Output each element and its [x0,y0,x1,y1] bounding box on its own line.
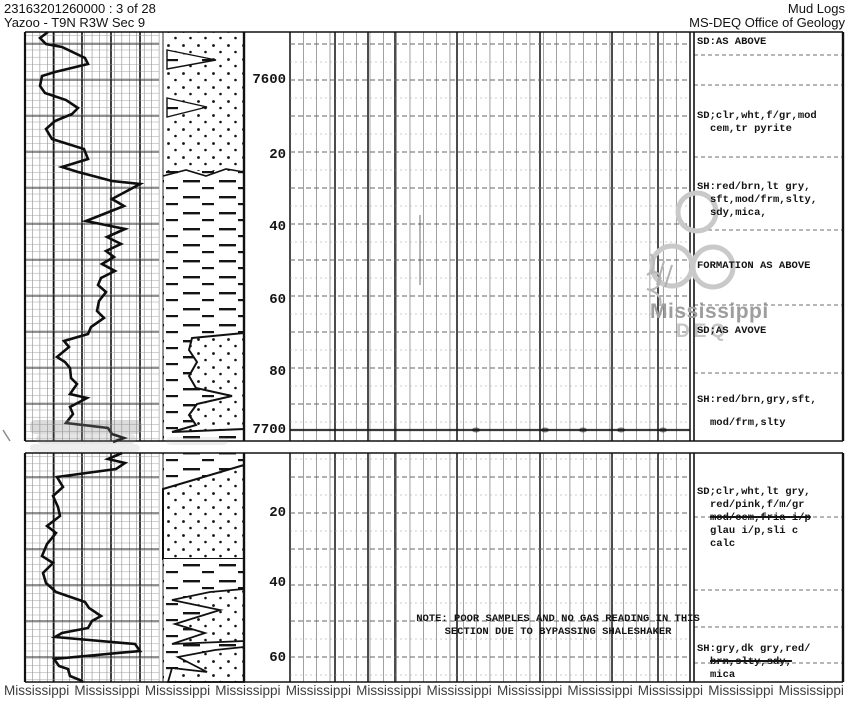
log-chart-svg [0,0,848,705]
description-line: cem,tr pyrite [697,123,843,136]
watermark-word: Mississippi [779,683,844,698]
description-block: SH:red/brn,lt gry,sft,mod/frm,slty,sdy,m… [697,181,843,220]
depth-label: 60 [248,292,286,308]
bottom-watermark-row: MississippiMississippiMississippiMississ… [0,683,848,698]
description-line: calc [697,538,843,551]
depth-label: 40 [248,575,286,591]
description-line: brn,slty,sdy, [697,656,843,669]
description-line: SH:gry,dk gry,red/ [697,643,843,656]
note-line-1: NOTE: POOR SAMPLES AND NO GAS READING IN… [368,613,748,626]
description-block: SD;clr,wht,f/gr,modcem,tr pyrite [697,110,843,136]
watermark-word: Mississippi [145,683,210,698]
description-block: SD:AS ABOVE [697,36,843,49]
description-block: SH:gry,dk gry,red/brn,slty,sdy,mica [697,643,843,682]
description-line: SH:red/brn,gry,sft, [697,394,843,407]
description-line: mod/cem,fria i/p [697,512,843,525]
header-agency: MS-DEQ Office of Geology [689,15,845,30]
depth-label: 20 [248,147,286,163]
description-line: SD:AS ABOVE [697,36,843,49]
watermark-word: Mississippi [497,683,562,698]
watermark-word: Mississippi [4,683,69,698]
watermark-word: Mississippi [286,683,351,698]
depth-label: 40 [248,219,286,235]
watermark-word: Mississippi [74,683,139,698]
description-line: SD;clr,wht,f/gr,mod [697,110,843,123]
watermark-word: Mississippi [708,683,773,698]
description-line: mica [697,669,843,682]
description-line: red/pink,f/m/gr [697,499,843,512]
description-line: SD;AS AVOVE [697,325,843,338]
description-line: FORMATION AS ABOVE [697,260,843,273]
mud-log-scan-page: 23163201260000 : 3 of 28 Yazoo - T9N R3W… [0,0,848,705]
depth-label: 80 [248,364,286,380]
depth-label: 7700 [248,422,286,438]
description-block: SD;clr,wht,lt gry,red/pink,f/m/grmod/cem… [697,486,843,551]
watermark-word: Mississippi [427,683,492,698]
description-line: SH:red/brn,lt gry, [697,181,843,194]
depth-label: 60 [248,650,286,666]
description-line: mod/frm,slty [697,417,843,430]
watermark-word: Mississippi [215,683,280,698]
note-block: NOTE: POOR SAMPLES AND NO GAS READING IN… [368,613,748,638]
description-block: FORMATION AS ABOVE [697,260,843,273]
depth-label: 7600 [248,72,286,88]
description-line: sft,mod/frm,slty, [697,194,843,207]
header-doc-ref: 23163201260000 : 3 of 28 [4,1,156,16]
depth-label: 20 [248,505,286,521]
header-well-name: Yazoo - T9N R3W Sec 9 [4,15,145,30]
description-line: glau i/p,sli c [697,525,843,538]
header-doc-type: Mud Logs [788,1,845,16]
description-block: SD;AS AVOVE [697,325,843,338]
description-block: SH:red/brn,gry,sft,mod/frm,slty [697,394,843,430]
watermark-word: Mississippi [638,683,703,698]
watermark-word: Mississippi [356,683,421,698]
note-line-2: SECTION DUE TO BYPASSING SHALESHAKER [368,626,748,639]
description-line: sdy,mica, [697,207,843,220]
description-line: SD;clr,wht,lt gry, [697,486,843,499]
watermark-word: Mississippi [567,683,632,698]
